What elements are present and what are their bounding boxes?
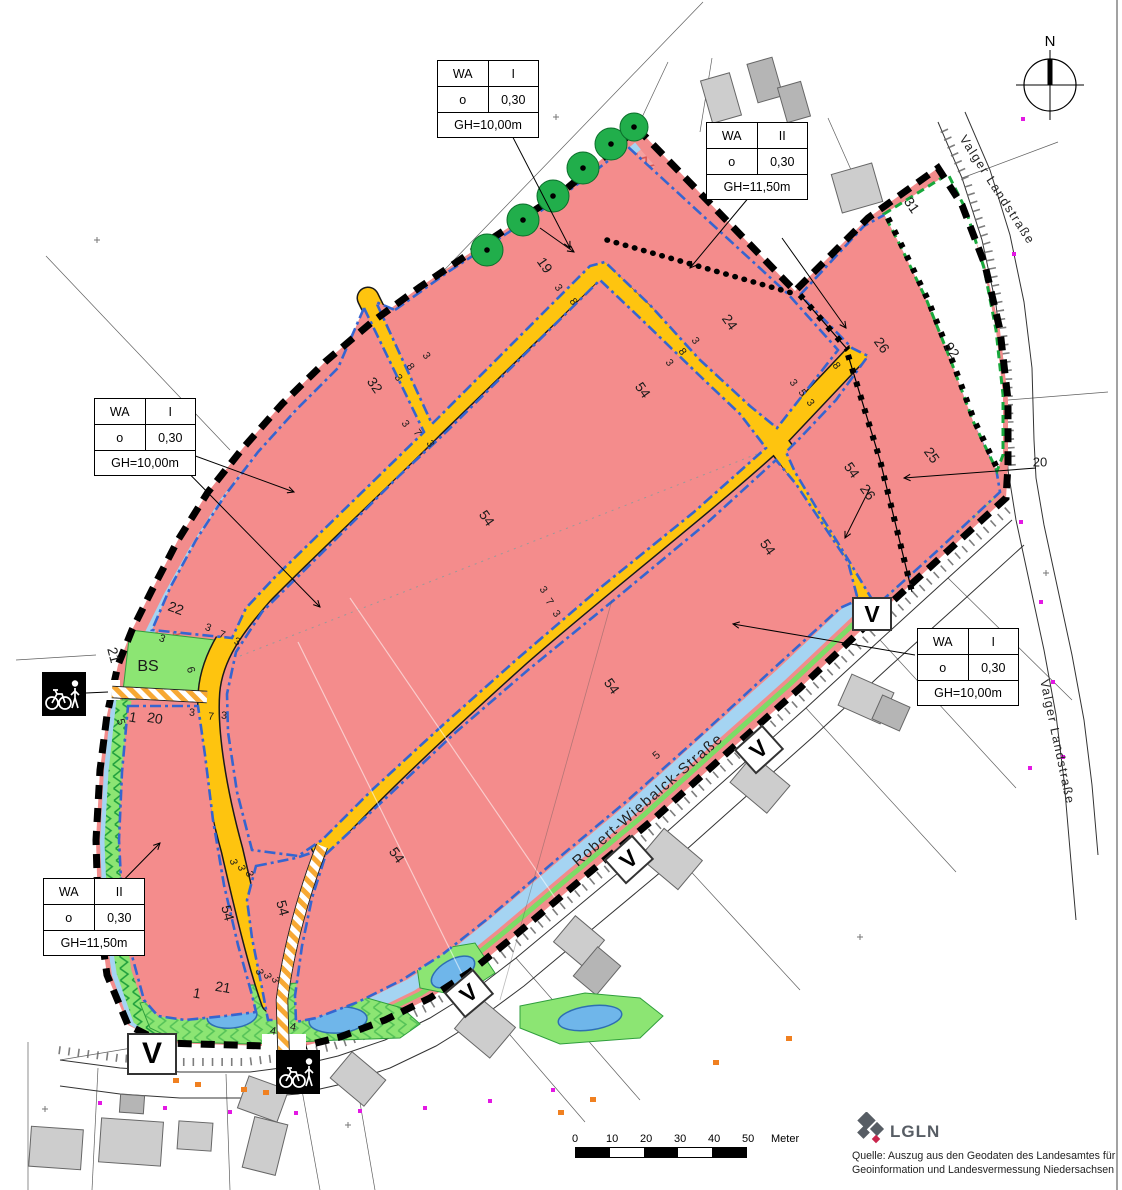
scale-tick: 0: [572, 1133, 578, 1145]
map-label: 20: [146, 710, 164, 726]
bike-pedestrian-sign-icon: [276, 1050, 320, 1094]
map-label: 54: [274, 899, 292, 918]
north-arrow: N: [1008, 28, 1092, 124]
wa-info-box: WAIIo0,30GH=11,50m: [706, 122, 808, 200]
wa-info-box: WAIo0,30GH=10,00m: [917, 628, 1019, 706]
wa-info-box: WAIo0,30GH=10,00m: [94, 398, 196, 476]
bike-pedestrian-sign-icon: [42, 672, 86, 716]
source-line-1: Quelle: Auszug aus den Geodaten des Land…: [852, 1150, 1118, 1164]
map-label: 21: [105, 646, 123, 665]
map-label: BS: [137, 659, 158, 675]
map-label: 7: [208, 712, 215, 723]
map-label: 54: [219, 904, 237, 923]
north-label: N: [1045, 33, 1056, 50]
source-line-2: Geoinformation und Landesvermessung Nied…: [852, 1164, 1118, 1178]
map-label: 3: [189, 708, 196, 719]
scale-tick: 20: [640, 1133, 652, 1145]
wa-info-box: WAIIo0,30GH=11,50m: [43, 878, 145, 956]
zoning-map: [0, 0, 1122, 1190]
wa-info-box: WAIo0,30GH=10,00m: [437, 60, 539, 138]
scale-bar: 01020304050 Meter: [575, 1133, 805, 1163]
v-marker: V: [852, 597, 892, 631]
scale-tick: 30: [674, 1133, 686, 1145]
lgln-logo-icon: [852, 1112, 892, 1146]
map-label: 21: [214, 979, 232, 995]
north-needle: [1048, 59, 1053, 85]
scale-unit: Meter: [771, 1133, 799, 1145]
map-label: 20: [1033, 456, 1047, 469]
scale-tick: 50: [742, 1133, 754, 1145]
lgln-logo-text: LGLN: [890, 1122, 940, 1142]
scale-bar-segments: [575, 1147, 747, 1158]
map-label: 3: [221, 711, 228, 722]
scale-tick: 10: [606, 1133, 618, 1145]
scale-tick: 40: [708, 1133, 720, 1145]
attribution-block: LGLN Quelle: Auszug aus den Geodaten des…: [852, 1112, 1118, 1178]
site-plan-canvas: N 01020304050 Meter LGLN Quelle: Auszug …: [0, 0, 1122, 1190]
v-marker: V: [127, 1033, 177, 1075]
